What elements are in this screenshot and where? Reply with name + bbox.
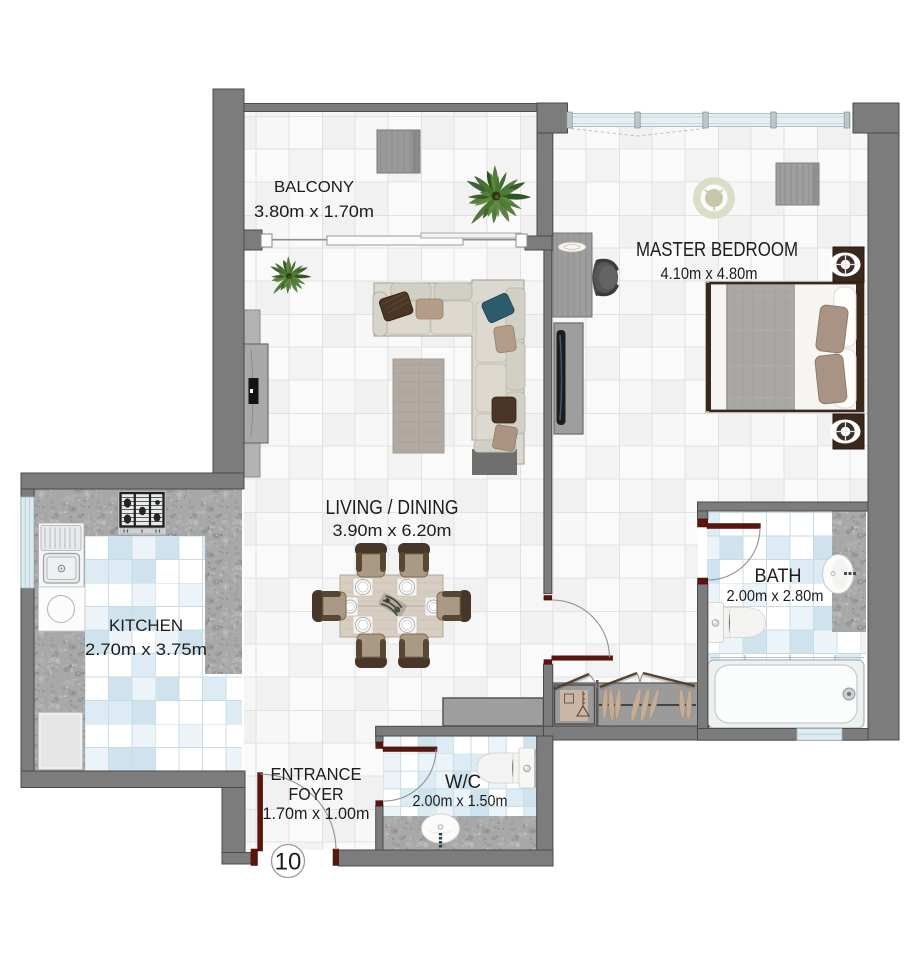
svg-text:ENTRANCE: ENTRANCE xyxy=(271,764,362,784)
svg-text:2.70m x 3.75m: 2.70m x 3.75m xyxy=(85,640,207,659)
svg-text:4.10m x 4.80m: 4.10m x 4.80m xyxy=(661,265,758,283)
svg-text:LIVING / DINING: LIVING / DINING xyxy=(326,497,459,519)
svg-text:2.00m x 1.50m: 2.00m x 1.50m xyxy=(413,793,508,810)
svg-text:BATH: BATH xyxy=(755,566,802,587)
svg-text:MASTER BEDROOM: MASTER BEDROOM xyxy=(636,239,798,261)
svg-text:KITCHEN: KITCHEN xyxy=(109,616,183,635)
svg-text:10: 10 xyxy=(275,849,302,876)
svg-text:2.00m x 2.80m: 2.00m x 2.80m xyxy=(727,588,824,605)
svg-text:3.80m x 1.70m: 3.80m x 1.70m xyxy=(254,203,374,221)
svg-text:FOYER: FOYER xyxy=(289,784,344,804)
svg-text:W/C: W/C xyxy=(445,772,481,793)
svg-text:BALCONY: BALCONY xyxy=(274,179,354,196)
svg-text:3.90m x 6.20m: 3.90m x 6.20m xyxy=(333,521,452,540)
svg-text:1.70m x 1.00m: 1.70m x 1.00m xyxy=(263,805,370,823)
